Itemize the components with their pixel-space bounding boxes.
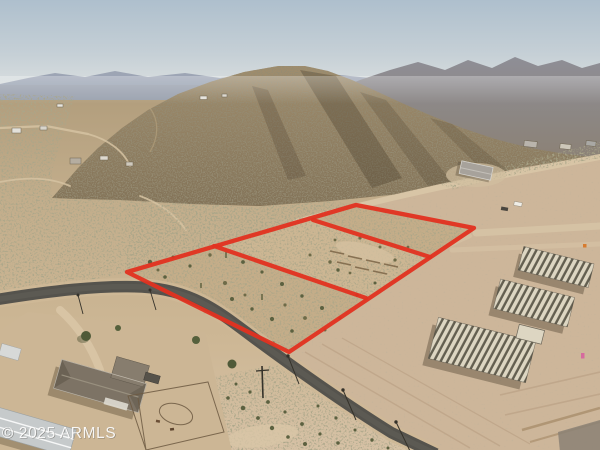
- watermark-text: © 2025 ARMLS: [2, 425, 116, 442]
- porta-potty: [581, 353, 585, 359]
- orange-marker: [583, 244, 587, 248]
- listing-photo: © 2025 ARMLS © 2025 ARMLS: [0, 0, 600, 450]
- haze-band: [0, 76, 600, 104]
- aerial-photo-svg: © 2025 ARMLS © 2025 ARMLS: [0, 0, 600, 450]
